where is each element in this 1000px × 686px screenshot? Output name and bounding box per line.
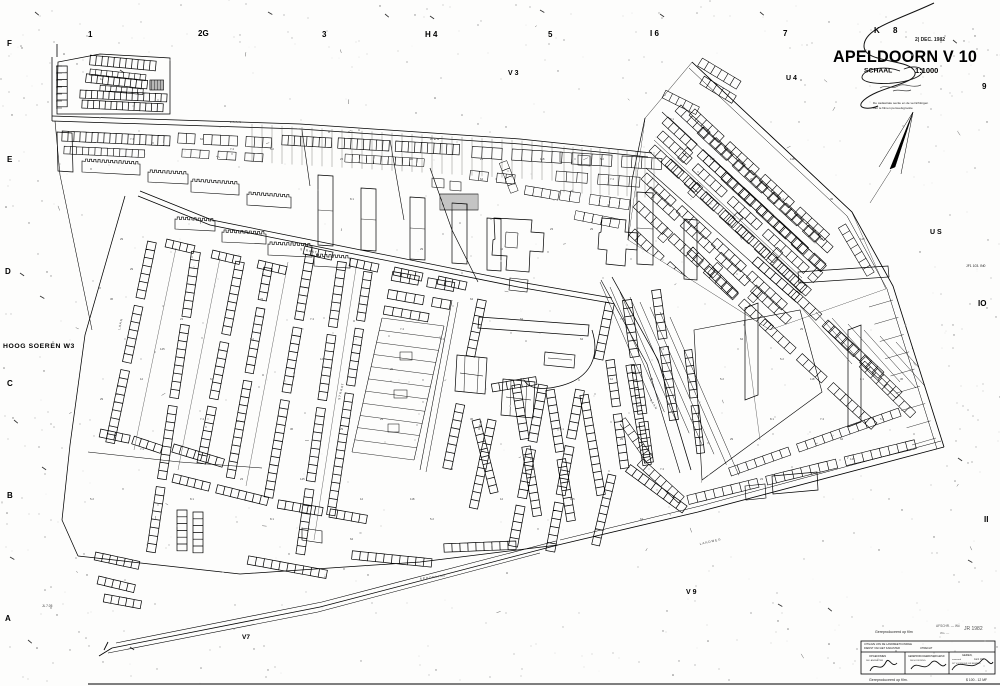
svg-text:12: 12 bbox=[500, 247, 504, 251]
svg-text:29: 29 bbox=[420, 247, 424, 251]
svg-text:Wo. —: Wo. — bbox=[940, 631, 949, 635]
svg-text:5.2: 5.2 bbox=[430, 517, 434, 521]
svg-text:36: 36 bbox=[900, 377, 904, 381]
svg-text:145: 145 bbox=[160, 347, 165, 351]
svg-text:36: 36 bbox=[110, 297, 114, 301]
svg-text:29: 29 bbox=[100, 397, 104, 401]
svg-text:12: 12 bbox=[140, 377, 144, 381]
svg-text:8.1: 8.1 bbox=[350, 197, 354, 201]
svg-text:UTRECHT: UTRECHT bbox=[920, 646, 933, 650]
svg-text:niet te filmen perceelsgrootte: niet te filmen perceelsgrootte bbox=[873, 106, 913, 110]
svg-text:23: 23 bbox=[550, 227, 554, 231]
svg-text:8.1: 8.1 bbox=[440, 337, 444, 341]
svg-text:7.4: 7.4 bbox=[200, 417, 204, 421]
svg-text:8.1: 8.1 bbox=[670, 117, 674, 121]
svg-text:7.4: 7.4 bbox=[140, 87, 144, 91]
svg-text:7.4: 7.4 bbox=[700, 197, 704, 201]
svg-text:AFSCHR. — Wo: AFSCHR. — Wo bbox=[936, 624, 960, 628]
svg-text:29: 29 bbox=[390, 367, 394, 371]
svg-text:OPGENOMEN: OPGENOMEN bbox=[869, 654, 886, 658]
svg-text:F: F bbox=[7, 39, 12, 48]
svg-text:145: 145 bbox=[570, 497, 575, 501]
svg-text:C: C bbox=[7, 379, 13, 388]
svg-text:64: 64 bbox=[470, 297, 474, 301]
svg-text:12: 12 bbox=[320, 357, 324, 361]
svg-text:7.4: 7.4 bbox=[660, 347, 664, 351]
svg-text:Gereproduceerd op film: Gereproduceerd op film bbox=[875, 630, 913, 634]
svg-text:145: 145 bbox=[860, 237, 865, 241]
svg-text:5.2: 5.2 bbox=[250, 337, 254, 341]
svg-text:7.4: 7.4 bbox=[820, 417, 824, 421]
svg-text:DE HOOFDING.: DE HOOFDING. bbox=[910, 660, 926, 662]
svg-text:B: B bbox=[7, 491, 13, 500]
svg-text:APELDOORN V 10: APELDOORN V 10 bbox=[833, 48, 977, 66]
svg-text:64: 64 bbox=[210, 377, 214, 381]
svg-text:29: 29 bbox=[620, 437, 624, 441]
svg-text:7.4: 7.4 bbox=[310, 317, 314, 321]
svg-text:23: 23 bbox=[480, 157, 484, 161]
svg-text:29: 29 bbox=[680, 147, 684, 151]
svg-text:JF1 103. IN0: JF1 103. IN0 bbox=[966, 264, 986, 268]
svg-text:23: 23 bbox=[340, 157, 344, 161]
svg-text:II: II bbox=[984, 515, 988, 524]
svg-text:LAAN: LAAN bbox=[230, 120, 242, 124]
svg-text:64: 64 bbox=[480, 177, 484, 181]
svg-text:UITGAVE VAN DE LANDMEETKUNDIGE: UITGAVE VAN DE LANDMEETKUNDIGE bbox=[864, 642, 912, 646]
svg-text:29: 29 bbox=[650, 377, 654, 381]
svg-text:23: 23 bbox=[180, 317, 184, 321]
svg-text:7.4: 7.4 bbox=[140, 447, 144, 451]
svg-text:D: D bbox=[5, 267, 11, 276]
svg-text:23: 23 bbox=[240, 477, 244, 481]
svg-text:29: 29 bbox=[380, 417, 384, 421]
svg-text:64: 64 bbox=[840, 437, 844, 441]
svg-text:V7: V7 bbox=[242, 634, 250, 641]
svg-text:U S: U S bbox=[930, 229, 942, 236]
svg-text:IO: IO bbox=[978, 299, 986, 308]
svg-text:64: 64 bbox=[200, 137, 204, 141]
svg-text:64: 64 bbox=[740, 337, 744, 341]
svg-text:GEREPRODUCEERD/VERKLEIND: GEREPRODUCEERD/VERKLEIND bbox=[908, 656, 945, 658]
svg-text:118: 118 bbox=[810, 377, 815, 381]
svg-text:12: 12 bbox=[690, 417, 694, 421]
svg-text:23: 23 bbox=[260, 297, 264, 301]
svg-text:12: 12 bbox=[610, 377, 614, 381]
svg-text:64: 64 bbox=[740, 217, 744, 221]
svg-text:voorzand: voorzand bbox=[952, 658, 962, 661]
svg-text:De cadastrale sectie en de ver: De cadastrale sectie en de verrichtingen bbox=[873, 101, 928, 105]
svg-text:64: 64 bbox=[580, 337, 584, 341]
svg-text:7.4: 7.4 bbox=[620, 317, 624, 321]
svg-text:7.4: 7.4 bbox=[520, 377, 524, 381]
svg-text:29: 29 bbox=[730, 437, 734, 441]
svg-text:118: 118 bbox=[410, 497, 415, 501]
svg-text:8: 8 bbox=[893, 26, 898, 35]
svg-text:7.4: 7.4 bbox=[660, 467, 664, 471]
svg-text:3: 3 bbox=[322, 30, 327, 39]
svg-text:5.2: 5.2 bbox=[600, 157, 604, 161]
svg-text:2G: 2G bbox=[198, 29, 209, 38]
svg-text:29: 29 bbox=[120, 237, 124, 241]
svg-text:8.1: 8.1 bbox=[770, 417, 774, 421]
svg-text:7.4: 7.4 bbox=[610, 177, 614, 181]
svg-text:7.4: 7.4 bbox=[400, 327, 404, 331]
svg-text:5.2: 5.2 bbox=[780, 197, 784, 201]
svg-text:36: 36 bbox=[470, 417, 474, 421]
svg-text:118: 118 bbox=[530, 457, 535, 461]
svg-text:7: 7 bbox=[783, 29, 788, 38]
svg-text:5.2: 5.2 bbox=[90, 497, 94, 501]
svg-text:5.2: 5.2 bbox=[270, 147, 274, 151]
svg-text:5: 5 bbox=[548, 30, 553, 39]
svg-text:WEG: WEG bbox=[430, 137, 440, 141]
svg-text:36: 36 bbox=[830, 197, 834, 201]
svg-text:I 6: I 6 bbox=[650, 29, 659, 38]
svg-text:5.2: 5.2 bbox=[720, 377, 724, 381]
svg-text:H 4: H 4 bbox=[425, 30, 438, 39]
svg-text:V 9: V 9 bbox=[686, 589, 697, 596]
svg-text:DIENST VAN HET KADASTER: DIENST VAN HET KADASTER bbox=[864, 646, 900, 650]
svg-text:$ 100 - 12 MF: $ 100 - 12 MF bbox=[966, 678, 987, 682]
svg-text:GEZIEN,: GEZIEN, bbox=[962, 653, 973, 657]
svg-text:36: 36 bbox=[410, 157, 414, 161]
svg-text:5.2: 5.2 bbox=[880, 417, 884, 421]
svg-text:145: 145 bbox=[850, 457, 855, 461]
svg-text:36: 36 bbox=[290, 427, 294, 431]
svg-text:5.2: 5.2 bbox=[780, 357, 784, 361]
svg-text:8.1: 8.1 bbox=[860, 377, 864, 381]
svg-text:JR 1982: JR 1982 bbox=[964, 626, 983, 632]
svg-text:V 3: V 3 bbox=[508, 70, 519, 77]
svg-text:118: 118 bbox=[790, 157, 795, 161]
svg-text:A: A bbox=[5, 614, 11, 623]
svg-text:12: 12 bbox=[500, 497, 504, 501]
svg-text:29: 29 bbox=[340, 427, 344, 431]
svg-text:118: 118 bbox=[540, 157, 545, 161]
svg-text:145: 145 bbox=[300, 477, 305, 481]
svg-text:8.1: 8.1 bbox=[190, 497, 194, 501]
svg-text:9: 9 bbox=[982, 82, 987, 91]
svg-text:64: 64 bbox=[350, 537, 354, 541]
svg-text:U 4: U 4 bbox=[786, 75, 797, 82]
svg-text:HOOG SOEREN W3: HOOG SOEREN W3 bbox=[3, 343, 75, 350]
svg-text:8.1: 8.1 bbox=[560, 427, 564, 431]
svg-text:118: 118 bbox=[710, 157, 715, 161]
svg-text:12: 12 bbox=[820, 237, 824, 241]
svg-text:29: 29 bbox=[130, 267, 134, 271]
svg-text:12: 12 bbox=[100, 77, 104, 81]
svg-text:E: E bbox=[7, 155, 13, 164]
svg-text:12: 12 bbox=[360, 497, 364, 501]
svg-text:Gereproduceerd op film.: Gereproduceerd op film. bbox=[869, 678, 908, 682]
svg-text:8.1: 8.1 bbox=[270, 517, 274, 521]
svg-text:29: 29 bbox=[590, 227, 594, 231]
svg-text:DE LANDMETER: DE LANDMETER bbox=[866, 659, 884, 662]
svg-text:1: 1 bbox=[88, 30, 93, 39]
svg-text:36: 36 bbox=[450, 467, 454, 471]
svg-text:7.4: 7.4 bbox=[130, 137, 134, 141]
svg-text:64: 64 bbox=[520, 317, 524, 321]
svg-text:29: 29 bbox=[800, 327, 804, 331]
svg-text:64: 64 bbox=[640, 517, 644, 521]
svg-text:29: 29 bbox=[750, 177, 754, 181]
svg-text:7.4: 7.4 bbox=[230, 147, 234, 151]
svg-text:23: 23 bbox=[760, 477, 764, 481]
